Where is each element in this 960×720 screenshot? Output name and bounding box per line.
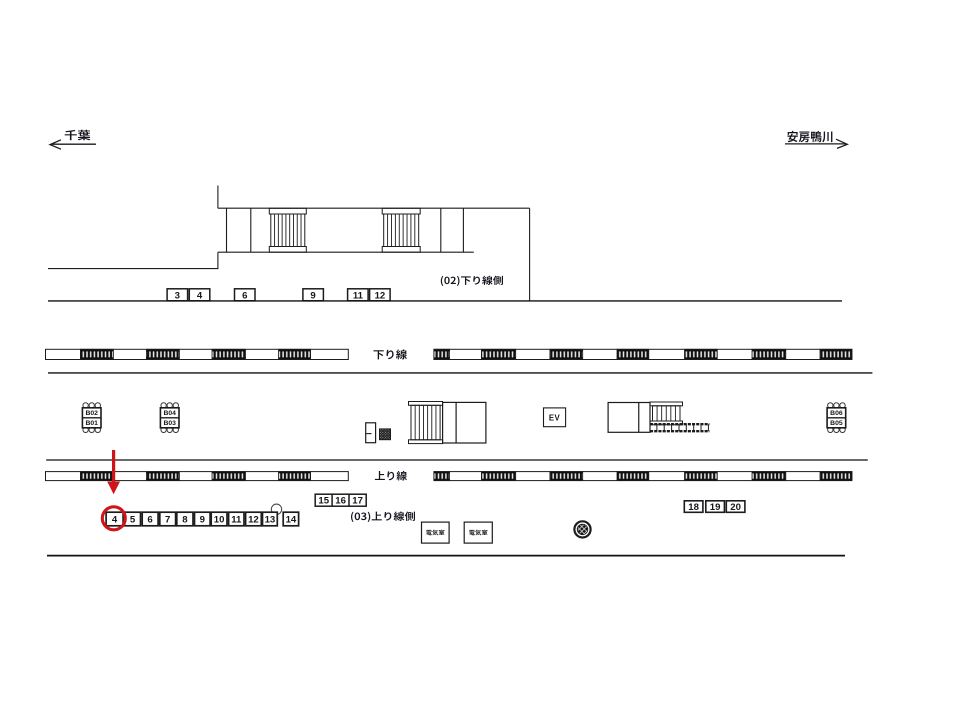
svg-text:8: 8: [182, 515, 188, 526]
svg-text:4: 4: [197, 290, 203, 301]
svg-text:B05: B05: [830, 420, 843, 427]
svg-text:9: 9: [310, 290, 315, 301]
svg-text:20: 20: [730, 502, 741, 513]
svg-text:6: 6: [242, 290, 247, 301]
svg-text:B03: B03: [163, 420, 176, 427]
svg-text:5: 5: [130, 515, 136, 526]
svg-text:B04: B04: [163, 410, 176, 417]
svg-text:B06: B06: [830, 410, 843, 417]
svg-text:14: 14: [286, 515, 297, 526]
svg-text:15: 15: [318, 496, 329, 507]
svg-text:4: 4: [112, 515, 118, 526]
svg-text:12: 12: [375, 290, 386, 301]
svg-text:10: 10: [214, 515, 225, 526]
svg-text:19: 19: [710, 502, 721, 513]
svg-text:EV: EV: [549, 413, 561, 422]
svg-text:3: 3: [175, 290, 180, 301]
svg-text:12: 12: [248, 515, 259, 526]
svg-text:17: 17: [352, 496, 363, 507]
svg-text:13: 13: [265, 515, 276, 526]
svg-text:18: 18: [688, 502, 699, 513]
svg-text:6: 6: [147, 515, 152, 526]
svg-text:7: 7: [165, 515, 170, 526]
svg-text:B02: B02: [85, 410, 98, 417]
svg-text:9: 9: [200, 515, 205, 526]
svg-text:B01: B01: [85, 420, 98, 427]
svg-text:11: 11: [231, 515, 242, 526]
svg-text:11: 11: [353, 290, 364, 301]
svg-text:16: 16: [335, 496, 346, 507]
